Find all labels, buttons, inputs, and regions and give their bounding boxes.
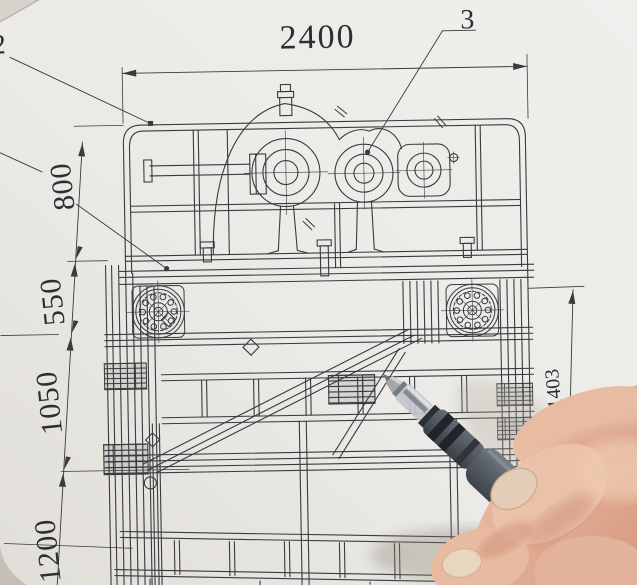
scene: 2400 2 3	[0, 0, 637, 585]
vignette	[0, 0, 637, 585]
photo-of-technical-drawing: 2400 2 3	[0, 0, 637, 585]
